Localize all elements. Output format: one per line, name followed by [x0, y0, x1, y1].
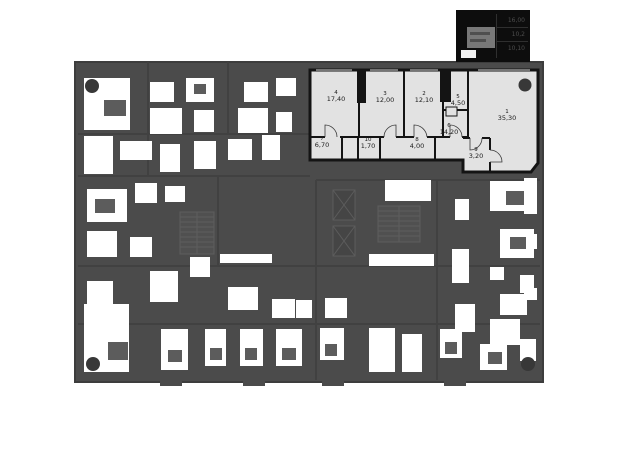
apartment-highlight[interactable]: [310, 70, 538, 172]
floorplan-canvas: [0, 0, 636, 450]
minimap-rows: 16,00 10,2 10,10: [496, 14, 528, 58]
minimap-row-value: 10,2: [497, 28, 528, 42]
minimap-row-value: 10,10: [497, 42, 528, 55]
minimap-text-bar: [470, 39, 486, 42]
minimap-text-bar: [470, 32, 490, 35]
minimap-widget[interactable]: 16,00 10,2 10,10: [456, 10, 530, 62]
minimap-highlight-chip: [461, 50, 476, 58]
floorplan-viewer: 135,30212,10312,00417,4054,50614,2076,70…: [0, 0, 636, 450]
minimap-building-icon: [467, 27, 495, 48]
minimap-row-value: 16,00: [497, 14, 528, 28]
